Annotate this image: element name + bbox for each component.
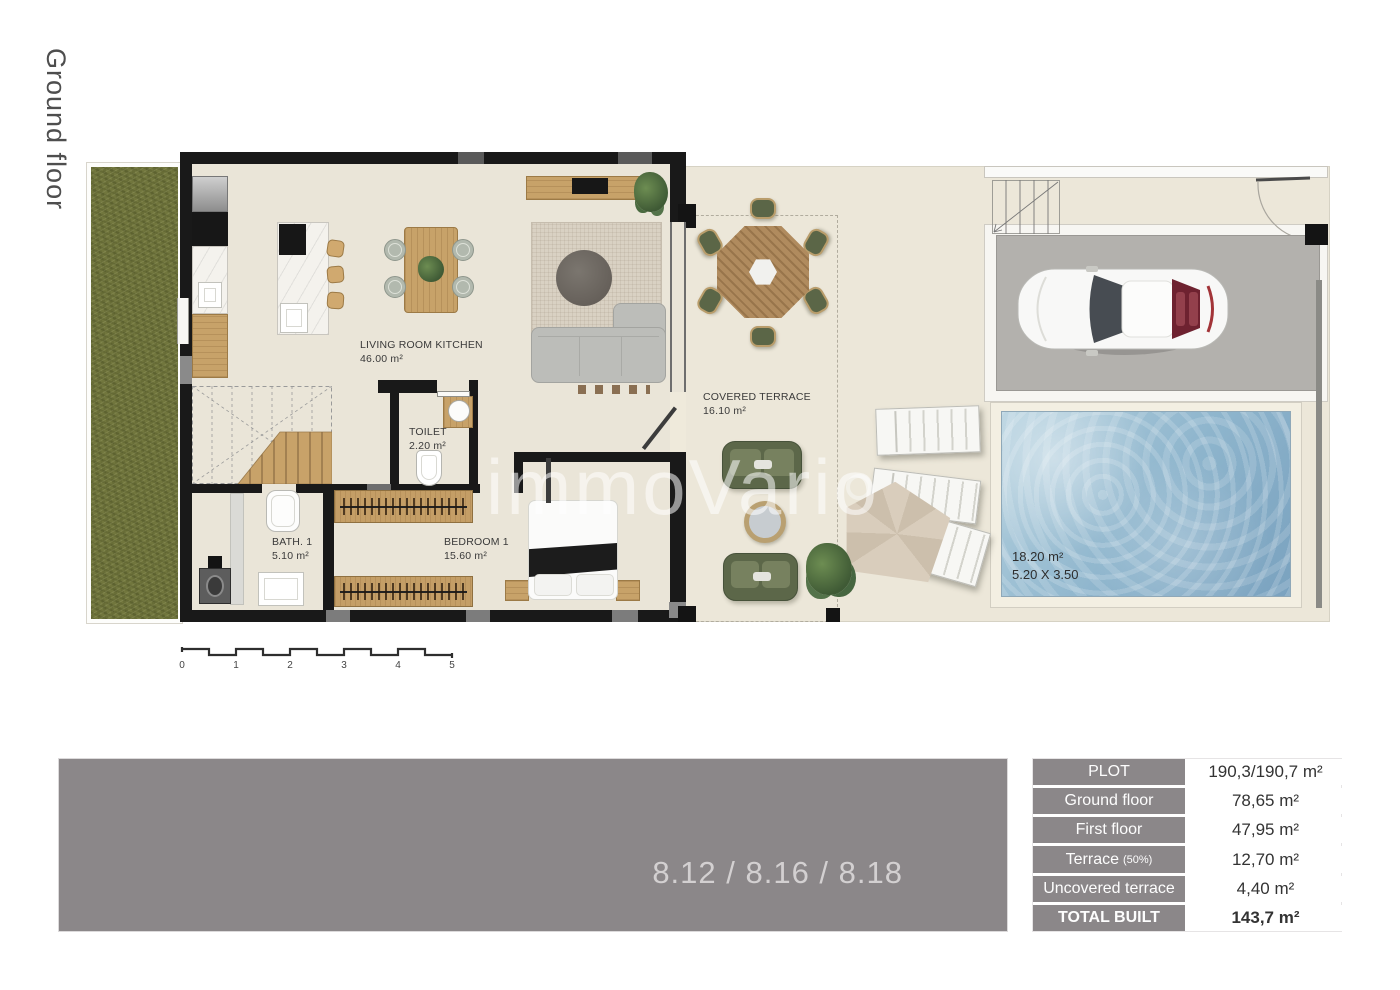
terrace-label: Terrace: [1066, 851, 1119, 869]
dining-chair: [452, 239, 474, 261]
wall-pier: [326, 610, 350, 622]
dining-chair: [384, 239, 406, 261]
wall-pier: [180, 356, 192, 384]
island-cooktop: [279, 224, 306, 255]
bedroom-label: BEDROOM 1 15.60 m²: [444, 536, 509, 563]
table-row-label: Ground floor: [1033, 788, 1185, 814]
bar-stool: [326, 291, 344, 309]
covered-terrace-label: COVERED TERRACE 16.10 m²: [703, 391, 811, 418]
floor-plan-page: { "page": { "floor_label": "Ground floor…: [0, 0, 1400, 990]
wall-pier: [466, 610, 490, 622]
toilet-wc: [416, 450, 442, 486]
outdoor-chair: [750, 326, 776, 347]
scale-tick: 4: [392, 660, 404, 671]
car-top-view: [1016, 264, 1230, 358]
scale-bar-line: [180, 646, 456, 658]
table-row-label: Uncovered terrace: [1033, 876, 1185, 902]
oven-unit: [192, 212, 228, 246]
nightstand: [505, 580, 529, 601]
wall-hall-bath: [192, 484, 262, 493]
boundary-wall: [1316, 280, 1322, 608]
bath-area: 5.10 m²: [272, 550, 312, 564]
wall-bath-bedroom: [323, 490, 334, 610]
table-row-value: 78,65 m²: [1188, 788, 1343, 814]
watermark: immoVario: [486, 442, 880, 533]
bed-pillow: [576, 574, 614, 596]
scale-tick: 2: [284, 660, 296, 671]
sun-lounger: [875, 405, 981, 456]
kitchen-cabinet: [192, 314, 228, 378]
table-row-label: Terrace (50%): [1033, 846, 1185, 872]
table-row-label: First floor: [1033, 817, 1185, 843]
scale-tick: 3: [338, 660, 350, 671]
scale-bar: 0 1 2 3 4 5: [180, 646, 460, 678]
wall-toilet-west: [390, 393, 399, 484]
bath-sink: [258, 572, 304, 606]
wall-pier: [612, 610, 638, 622]
covered-terrace-area: 16.10 m²: [703, 405, 811, 419]
toilet-area: 2.20 m²: [409, 440, 447, 454]
living-room-name: LIVING ROOM KITCHEN: [360, 339, 483, 351]
table-row-value: 47,95 m²: [1188, 817, 1343, 843]
shower: [230, 493, 244, 605]
unit-banner: 8.12 / 8.16 / 8.18: [58, 758, 1008, 932]
scale-tick: 0: [176, 660, 188, 671]
bath-name: BATH. 1: [272, 536, 312, 548]
scale-tick: 1: [230, 660, 242, 671]
left-wall-window: [177, 298, 189, 344]
terrace-plant: [806, 543, 852, 595]
dining-chair: [452, 276, 474, 298]
terrace-wall-stub: [678, 606, 696, 622]
table-row-value: 190,3/190,7 m²: [1188, 759, 1343, 785]
round-rug: [556, 250, 612, 306]
right-glass-wall: [670, 222, 686, 392]
pool-dimensions: 5.20 X 3.50: [1012, 566, 1079, 584]
pool-area: 18.20 m²: [1012, 548, 1079, 566]
dining-chair: [384, 276, 406, 298]
toilet-sink: [448, 400, 470, 422]
bed-pillow: [534, 574, 572, 596]
exterior-stairs: [992, 180, 1060, 234]
nightstand: [616, 580, 640, 601]
bath-label: BATH. 1 5.10 m²: [272, 536, 312, 563]
staircase: [192, 386, 332, 484]
gate-column: [1305, 224, 1328, 245]
bar-stool: [326, 265, 344, 283]
wardrobe: [334, 576, 473, 607]
table-plant: [418, 256, 444, 282]
washing-machine: [199, 568, 231, 604]
terrace-wall-stub: [826, 608, 840, 622]
outdoor-chair: [750, 198, 776, 219]
bedroom-area: 15.60 m²: [444, 550, 509, 564]
toilet-label: TOILET 2.20 m²: [409, 426, 447, 453]
sofa: [531, 327, 666, 383]
grass-lawn: [91, 167, 178, 619]
wardrobe: [334, 490, 473, 523]
living-room-area: 46.00 m²: [360, 353, 483, 367]
bathtub: [266, 490, 300, 532]
scale-tick: 5: [446, 660, 458, 671]
terrace-label-note: (50%): [1123, 854, 1152, 866]
wall-pier: [618, 152, 652, 164]
island-sink: [280, 303, 308, 333]
outdoor-loveseat: [723, 553, 798, 601]
bar-stool: [326, 239, 345, 258]
covered-terrace-name: COVERED TERRACE: [703, 391, 811, 403]
area-summary-table: PLOT 190,3/190,7 m² Ground floor 78,65 m…: [1032, 758, 1342, 932]
unit-numbers: 8.12 / 8.16 / 8.18: [652, 855, 903, 891]
floor-title: Ground floor: [40, 48, 71, 210]
toilet-name: TOILET: [409, 426, 447, 438]
garden: [86, 162, 183, 624]
pool-label: 18.20 m² 5.20 X 3.50: [1012, 548, 1079, 583]
kitchen-sink: [198, 282, 222, 308]
wall-toilet-north: [378, 380, 437, 393]
corner-plant: [634, 172, 668, 212]
tv-screen: [572, 178, 608, 194]
sofa-back-decor: [578, 385, 650, 394]
table-row-value: 12,70 m²: [1188, 846, 1343, 872]
table-row-label: PLOT: [1033, 759, 1185, 785]
table-row-value: 143,7 m²: [1188, 905, 1343, 931]
table-row-value: 4,40 m²: [1188, 876, 1343, 902]
table-row-label: TOTAL BUILT: [1033, 905, 1185, 931]
loveseat-pillow: [753, 572, 771, 581]
fridge: [192, 176, 228, 212]
toilet-door-leaf: [437, 391, 470, 397]
bedroom-name: BEDROOM 1: [444, 536, 509, 548]
living-room-label: LIVING ROOM KITCHEN 46.00 m²: [360, 339, 483, 366]
wall-pier: [458, 152, 484, 164]
